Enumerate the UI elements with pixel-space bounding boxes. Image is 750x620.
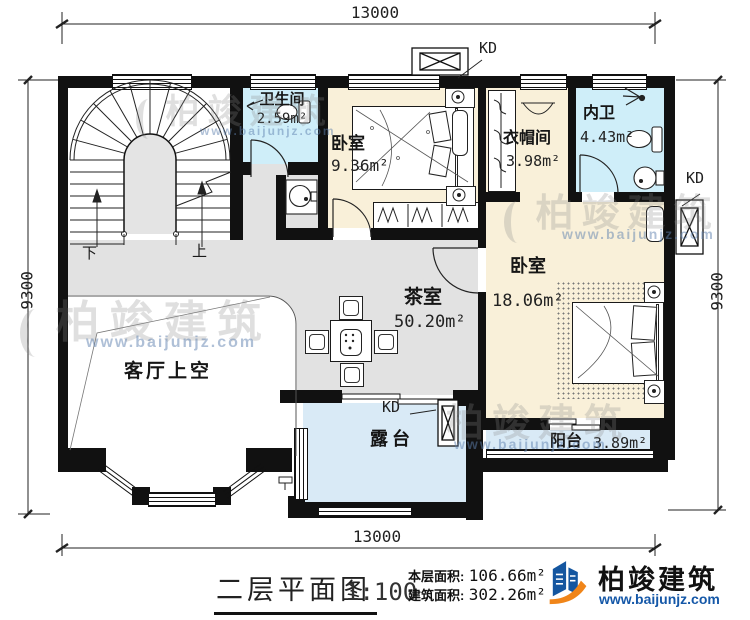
room-label-void: 客厅上空 [124,362,212,382]
dimension-bottom: 13000 [332,529,422,546]
ac-label-top: KD [479,41,497,57]
wall-segment [568,88,576,202]
drawing-scale: 1:100 [345,578,417,606]
bay-wall-corner [246,448,292,472]
wall-segment [568,192,582,202]
room-area-balcony: 3.89m² [593,436,647,452]
stair-down-label: 下 [82,246,97,262]
wall-segment [276,228,333,240]
room-area-bath2: 4.43m² [580,130,634,146]
room-label-bath1: 卫生间 [247,92,317,108]
dimension-left: 9300 [20,260,37,320]
staircase [70,80,231,247]
window [112,74,192,90]
wall-segment [664,76,675,430]
gross-area-label: 建筑面积: [408,588,464,603]
bed2-pillow [631,341,657,377]
room-label-bath2: 内卫 [583,106,615,123]
stair-up-label: 上 [192,244,207,260]
chair [305,330,329,354]
ac-duct [646,206,664,242]
floor-area-value: 106.66m² [469,566,546,585]
wall-segment [230,88,243,240]
room-area-cloakroom: 3.98m² [506,154,560,170]
ac-label-terrace: KD [382,400,400,416]
wall-segment [478,418,550,430]
nightstand [445,88,475,108]
brand-logo-icon [545,555,595,611]
room-area-bath1: 2.59m² [250,112,314,127]
wall-segment [614,192,664,202]
cloakroom-opening [520,192,568,202]
wall-segment [453,390,483,406]
wall-segment [58,76,68,454]
brand-url: www.baijunjz.com [599,591,720,607]
tea-tray [340,329,362,356]
wall-segment [478,88,486,248]
dimension-right: 9300 [710,261,727,321]
bedroom1-wardrobe [373,202,479,230]
room-label-cloakroom: 衣帽间 [503,131,551,148]
terrace-floor [303,403,466,503]
bay-wall-corner [58,448,106,472]
chair [340,363,364,387]
bed2-pillow [631,305,657,341]
floor-area-label: 本层面积: [408,569,464,584]
wall-segment [600,418,664,430]
wall-segment [478,458,668,472]
wall-segment [288,162,318,175]
wall-segment [243,162,251,175]
gross-area-row: 建筑面积: 302.26m² [408,587,546,605]
terrace-window [318,506,412,517]
window [250,74,316,90]
nightstand [644,380,666,404]
dimension-top: 13000 [330,5,420,22]
floor-plan-canvas: 13000 13000 9300 9300 卫生间 2.59m² 卧室 9.36… [0,0,750,620]
wall-segment [371,228,478,240]
floor-area-row: 本层面积: 106.66m² [408,568,546,586]
room-area-bedroom2: 18.06m² [492,293,564,311]
wall-segment [280,390,342,403]
bay-window [148,492,216,507]
ac-label-right: KD [686,171,704,187]
ac-duct [452,110,468,156]
room-label-bedroom1: 卧室 [331,135,365,153]
wall-segment [318,88,328,238]
chair [374,330,398,354]
gross-area-value: 302.26m² [469,585,546,604]
chair [339,296,363,320]
room-area-tearoom: 50.20m² [394,314,466,332]
window [592,74,647,90]
room-label-terrace: 露台 [370,430,414,449]
terrace-side-window [294,428,308,500]
window [348,74,440,90]
nightstand [644,282,666,303]
window [520,74,567,90]
room-label-bedroom2: 卧室 [510,257,546,276]
nightstand [446,186,476,206]
faucet-icon [279,477,292,490]
room-area-bedroom1: 9.36m² [331,158,389,175]
room-label-tearoom: 茶室 [404,288,442,308]
wall-segment [478,192,520,202]
room-label-balcony: 阳台 [550,434,582,451]
